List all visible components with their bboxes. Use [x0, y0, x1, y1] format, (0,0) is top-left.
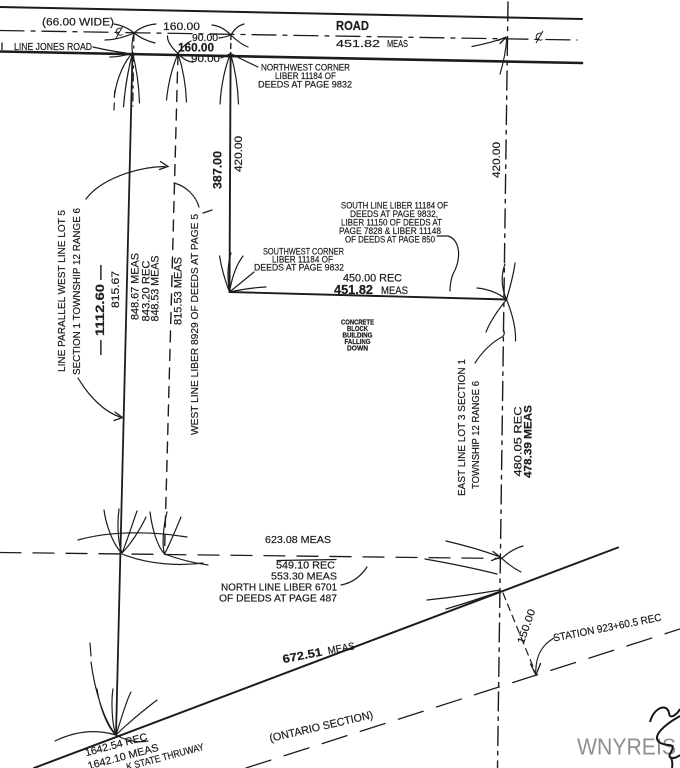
svg-text:420.00: 420.00: [491, 142, 503, 178]
svg-text:150.00: 150.00: [515, 607, 538, 645]
svg-text:(ONTARIO SECTION): (ONTARIO SECTION): [268, 709, 374, 745]
svg-text:478.39 MEAS: 478.39 MEAS: [523, 405, 535, 478]
svg-text:LINE JONES ROAD: LINE JONES ROAD: [14, 42, 92, 53]
svg-text:672.51: 672.51: [282, 647, 324, 667]
svg-text:OF DEEDS AT PAGE 487: OF DEEDS AT PAGE 487: [219, 594, 337, 605]
svg-text:160.00: 160.00: [163, 21, 200, 33]
svg-text:553.30 MEAS: 553.30 MEAS: [271, 571, 337, 583]
svg-text:ROAD: ROAD: [336, 19, 369, 33]
svg-text:NORTH LINE LIBER 6701: NORTH LINE LIBER 6701: [221, 583, 337, 594]
svg-text:DEEDS AT PAGE 9832: DEEDS AT PAGE 9832: [258, 80, 352, 91]
svg-text:DOWN: DOWN: [347, 346, 368, 353]
svg-text:EAST LINE LOT 3 SECTION 1: EAST LINE LOT 3 SECTION 1: [456, 359, 468, 496]
svg-text:SECTION 1 TOWNSHIP 12 RANGE 6: SECTION 1 TOWNSHIP 12 RANGE 6: [71, 208, 83, 375]
svg-text:451.82: 451.82: [336, 38, 380, 50]
svg-text:OF DEEDS AT PAGE 850: OF DEEDS AT PAGE 850: [345, 235, 435, 246]
svg-text:— 1112.60 —: — 1112.60 —: [93, 265, 107, 355]
svg-text:815.67: 815.67: [110, 271, 122, 308]
svg-text:LINE PARALLEL WEST LINE LOT 5: LINE PARALLEL WEST LINE LOT 5: [56, 210, 68, 372]
svg-text:848.53 MEAS: 848.53 MEAS: [150, 256, 162, 322]
svg-text:WEST LINE LIBER 8929 OF DEEDS: WEST LINE LIBER 8929 OF DEEDS AT PAGE 5: [189, 214, 201, 435]
svg-text:90.00: 90.00: [191, 53, 220, 65]
svg-text:MEAS: MEAS: [327, 640, 356, 657]
svg-text:MEAS: MEAS: [387, 38, 408, 50]
svg-text:420.00: 420.00: [233, 136, 245, 172]
svg-text:(66.00 WIDE): (66.00 WIDE): [42, 17, 114, 29]
svg-text:815.53 MEAS: 815.53 MEAS: [173, 257, 185, 325]
svg-text:TOWNSHIP 12 RANGE 6: TOWNSHIP 12 RANGE 6: [470, 381, 482, 489]
svg-text:387.00: 387.00: [213, 151, 225, 189]
svg-text:WNYREIS: WNYREIS: [577, 734, 676, 760]
svg-text:623.08 MEAS: 623.08 MEAS: [265, 534, 331, 546]
svg-text:451.82: 451.82: [334, 283, 373, 297]
svg-text:DEEDS AT PAGE 9832: DEEDS AT PAGE 9832: [254, 263, 344, 274]
svg-text:MEAS: MEAS: [381, 285, 408, 297]
